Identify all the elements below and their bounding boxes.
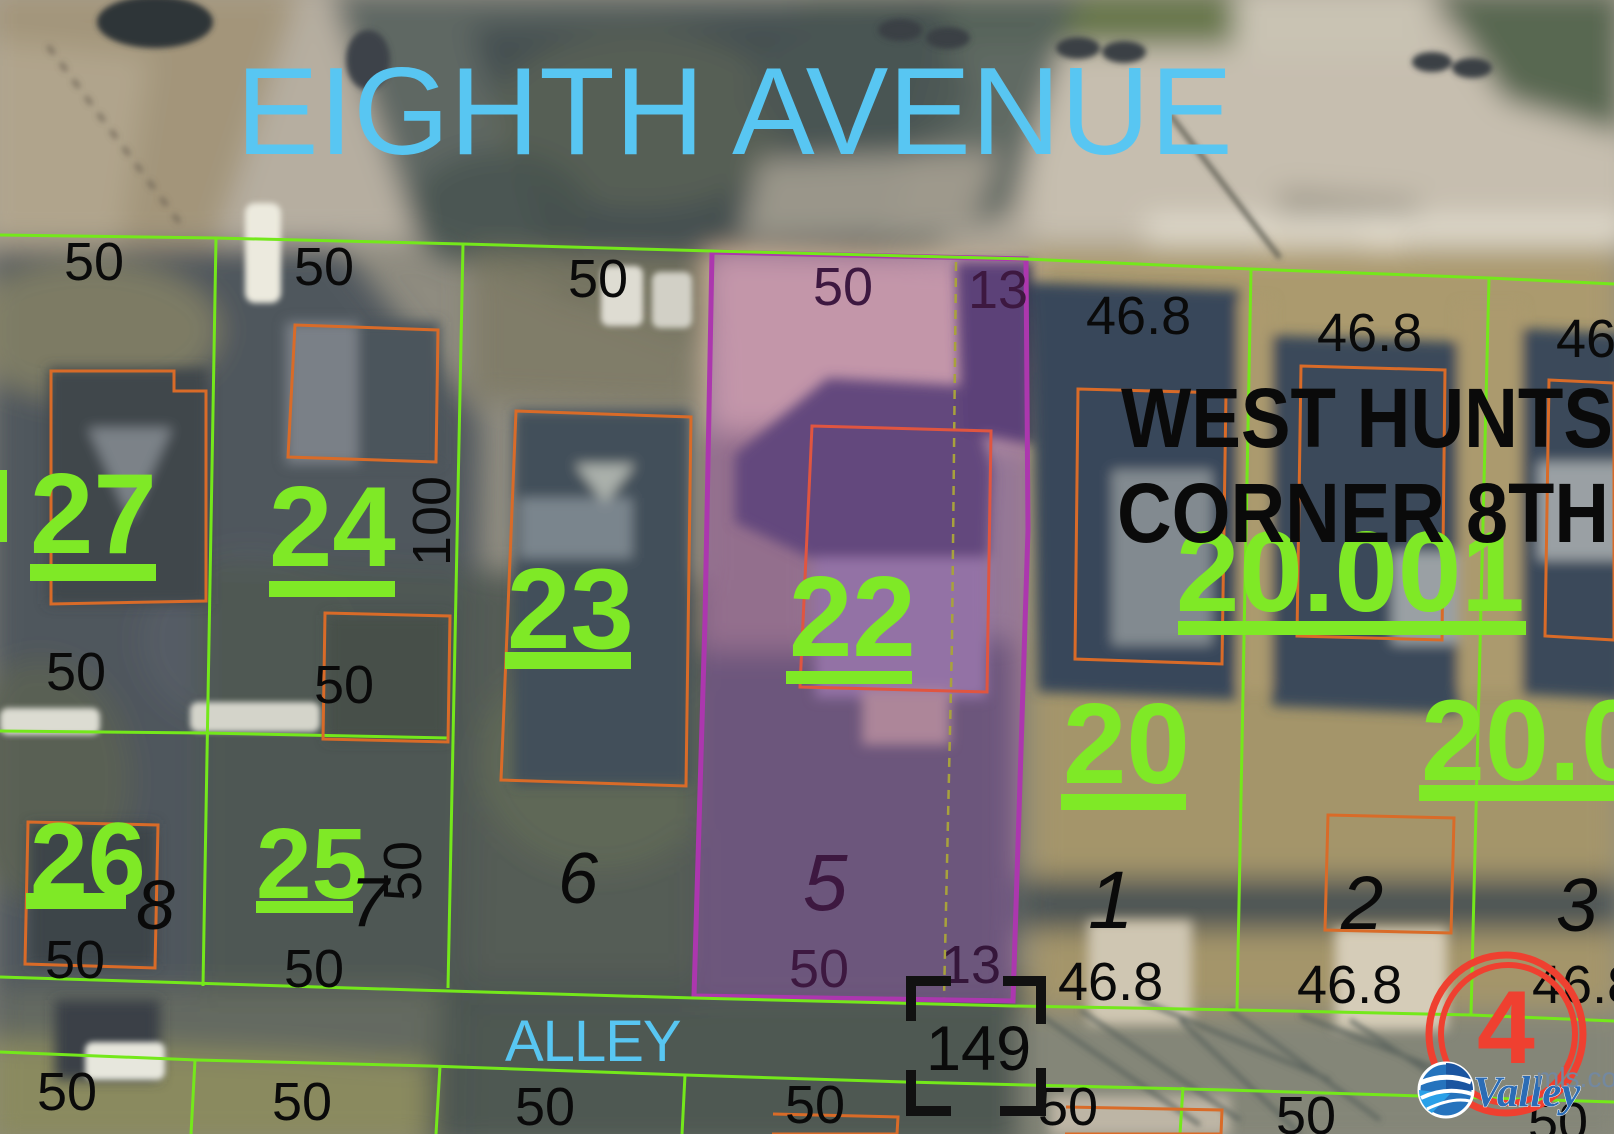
svg-text:50: 50 bbox=[294, 237, 354, 297]
svg-text:5: 5 bbox=[803, 838, 848, 927]
svg-text:50: 50 bbox=[284, 939, 344, 999]
svg-text:50: 50 bbox=[272, 1072, 332, 1132]
svg-text:mls.com: mls.com bbox=[1536, 1062, 1614, 1093]
svg-text:50: 50 bbox=[46, 642, 106, 702]
svg-text:50: 50 bbox=[64, 232, 124, 292]
svg-text:13: 13 bbox=[968, 260, 1028, 320]
svg-text:50: 50 bbox=[373, 841, 433, 901]
svg-text:46.8: 46.8 bbox=[1556, 309, 1614, 369]
svg-text:50: 50 bbox=[45, 930, 105, 990]
svg-text:50: 50 bbox=[1038, 1077, 1098, 1134]
svg-text:ALLEY: ALLEY bbox=[505, 1009, 681, 1074]
svg-text:50: 50 bbox=[789, 939, 849, 999]
svg-text:46.8: 46.8 bbox=[1058, 952, 1163, 1012]
svg-text:20: 20 bbox=[1063, 681, 1190, 808]
svg-text:149: 149 bbox=[926, 1014, 1031, 1084]
svg-text:2: 2 bbox=[1340, 861, 1383, 946]
svg-text:50: 50 bbox=[813, 257, 873, 317]
svg-text:8: 8 bbox=[136, 866, 175, 944]
svg-text:46.8: 46.8 bbox=[1297, 955, 1402, 1015]
svg-text:50: 50 bbox=[785, 1075, 845, 1134]
svg-text:22: 22 bbox=[789, 554, 916, 681]
svg-text:50: 50 bbox=[1276, 1086, 1336, 1134]
svg-text:46.8: 46.8 bbox=[1086, 286, 1191, 346]
svg-text:1: 1 bbox=[1088, 855, 1134, 946]
svg-text:WEST HUNTS: WEST HUNTS bbox=[1121, 371, 1613, 465]
svg-text:50: 50 bbox=[515, 1077, 575, 1134]
svg-text:100: 100 bbox=[402, 476, 462, 566]
svg-text:46.8: 46.8 bbox=[1317, 303, 1422, 363]
svg-text:50: 50 bbox=[37, 1062, 97, 1122]
svg-text:50: 50 bbox=[568, 249, 628, 309]
svg-text:EIGHTH AVENUE: EIGHTH AVENUE bbox=[236, 43, 1233, 181]
svg-text:CORNER 8TH: CORNER 8TH bbox=[1117, 466, 1609, 560]
svg-text:6: 6 bbox=[558, 839, 599, 919]
svg-text:3: 3 bbox=[1556, 863, 1598, 947]
svg-text:50: 50 bbox=[314, 655, 374, 715]
svg-text:24: 24 bbox=[269, 464, 396, 591]
svg-text:27: 27 bbox=[30, 451, 157, 578]
